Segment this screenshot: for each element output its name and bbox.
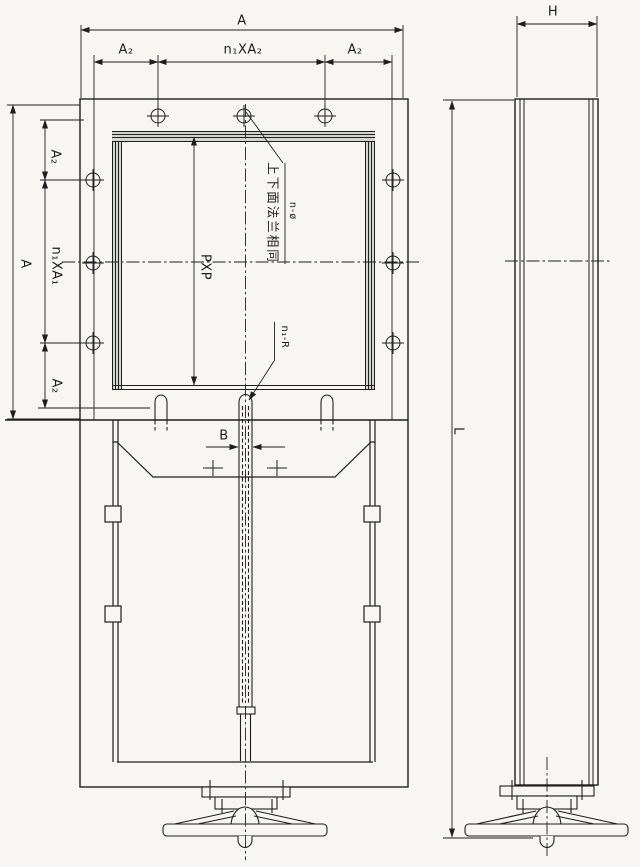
dim-label-b: B <box>219 430 228 443</box>
dim-label-a2-top-left: A₂ <box>118 44 133 57</box>
bolt-hole <box>382 252 404 274</box>
gate-seal-bands <box>112 131 375 390</box>
flange-bolt-holes <box>82 105 404 354</box>
side-slot <box>155 395 167 431</box>
front-outer-frame <box>5 99 408 787</box>
drawing-sheet: A A₂ n₁XA₂ A₂ A A₂ n₁XA₁ A₂ PXP 上下面法兰相同 … <box>0 0 640 867</box>
slot-count-label: n₁-R <box>279 326 289 349</box>
bonnet-trapezoid <box>113 442 375 477</box>
stem <box>237 402 255 761</box>
side-centerlines <box>505 261 612 857</box>
rail-tab <box>364 606 380 622</box>
dim-label-a2-left-bottom: A₂ <box>50 378 63 393</box>
rail-tab <box>105 606 121 622</box>
bolt-hole <box>233 105 255 127</box>
bolt-hole <box>82 252 104 274</box>
cross-mark <box>267 460 287 476</box>
cross-mark <box>203 460 223 476</box>
bolt-hole <box>82 332 104 354</box>
handwheel-side <box>465 780 628 848</box>
side-view <box>443 16 628 857</box>
dim-label-n1xa2: n₁XA₂ <box>224 44 263 57</box>
actuator-plate <box>202 787 290 797</box>
bolt-hole <box>382 169 404 191</box>
bolt-hole <box>382 332 404 354</box>
dim-label-a2-top-right: A₂ <box>347 44 362 57</box>
dim-label-a-top: A <box>237 15 246 28</box>
bolt-holes-count-label: n-ø <box>287 202 297 220</box>
bolt-hole <box>82 169 104 191</box>
bolt-hole <box>147 105 169 127</box>
front-dimensions <box>7 25 403 447</box>
handwheel-rim <box>465 824 628 836</box>
dim-label-a2-left-top: A₂ <box>49 149 62 164</box>
side-body <box>515 99 598 785</box>
handwheel-rim <box>163 824 327 836</box>
handwheel-front <box>163 780 327 848</box>
rail-tab <box>105 506 121 522</box>
bolt-hole <box>314 105 336 127</box>
side-slot <box>321 395 333 431</box>
stem-coupling <box>237 707 255 714</box>
dim-label-n1xa1: n₁XA₁ <box>50 247 63 286</box>
front-view <box>5 25 420 860</box>
stem-nut <box>238 836 252 848</box>
rail-tab <box>364 506 380 522</box>
dim-label-l: L <box>452 427 465 435</box>
leader-slots <box>249 361 274 400</box>
slot-band <box>155 395 333 431</box>
dim-label-pxp: PXP <box>199 254 212 280</box>
flange-note: 上下面法兰相同 <box>266 162 279 264</box>
dim-label-a-left: A <box>19 259 32 268</box>
drawing-canvas <box>0 0 640 867</box>
dim-label-h: H <box>548 6 558 19</box>
